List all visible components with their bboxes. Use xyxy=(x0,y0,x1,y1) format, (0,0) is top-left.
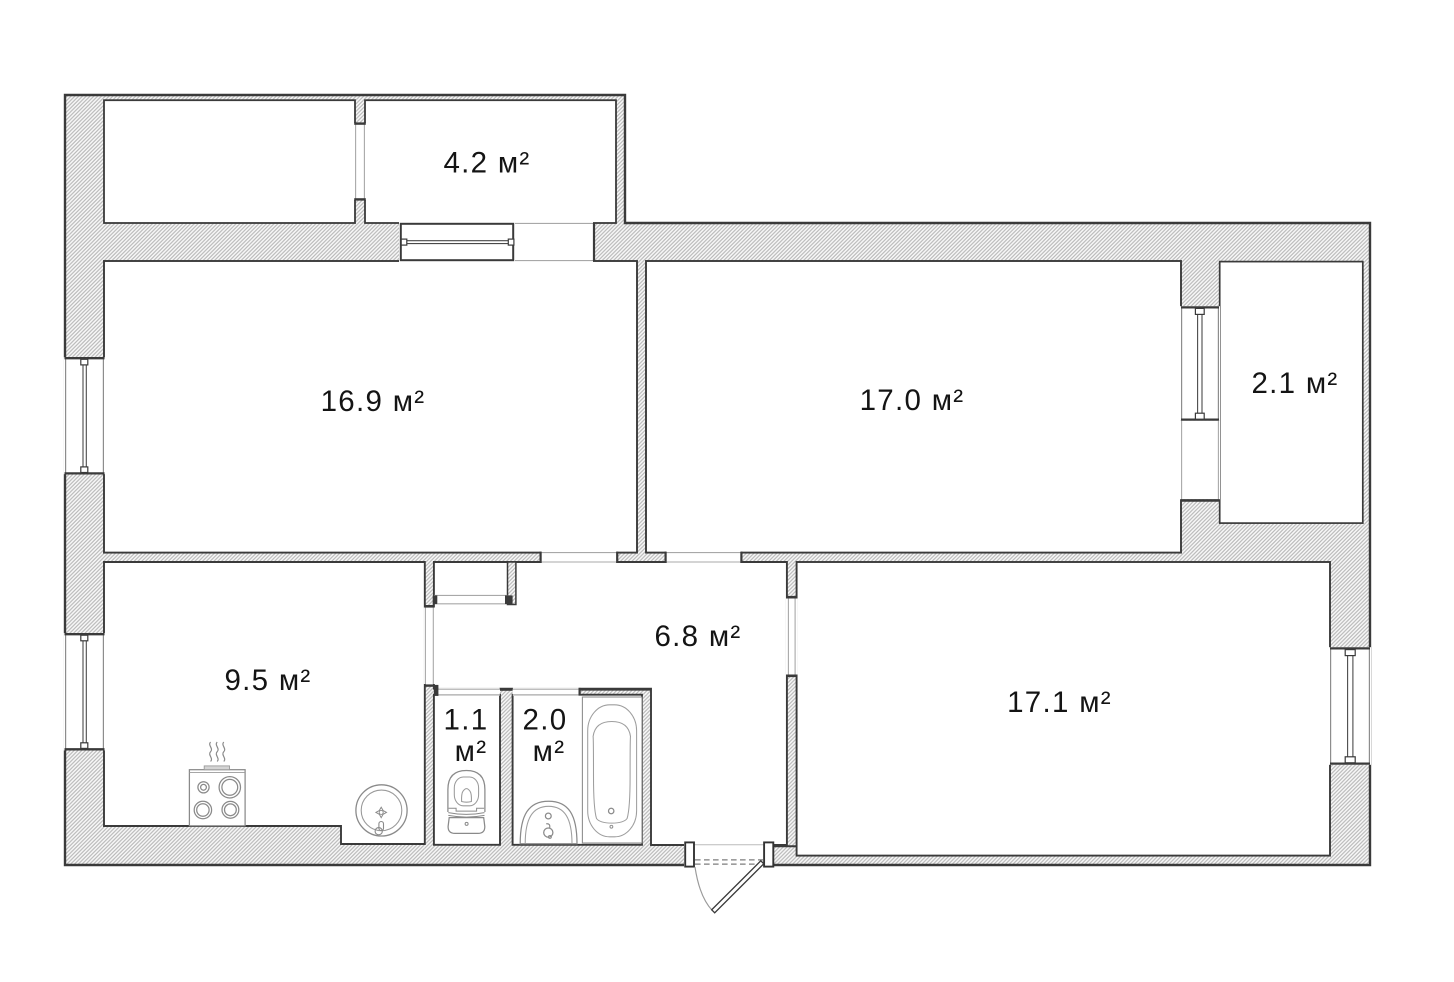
svg-text:2.1 м²: 2.1 м² xyxy=(1251,367,1338,400)
svg-text:16.9 м²: 16.9 м² xyxy=(321,385,426,418)
svg-text:17.1 м²: 17.1 м² xyxy=(1007,686,1112,719)
svg-text:6.8 м²: 6.8 м² xyxy=(654,620,741,653)
svg-text:17.0 м²: 17.0 м² xyxy=(860,384,965,417)
svg-text:9.5 м²: 9.5 м² xyxy=(224,664,311,697)
svg-text:4.2 м²: 4.2 м² xyxy=(443,147,530,180)
svg-text:2.0: 2.0 xyxy=(523,704,568,737)
svg-text:1.1: 1.1 xyxy=(444,704,489,737)
svg-text:м²: м² xyxy=(533,735,566,768)
svg-text:м²: м² xyxy=(455,735,488,768)
